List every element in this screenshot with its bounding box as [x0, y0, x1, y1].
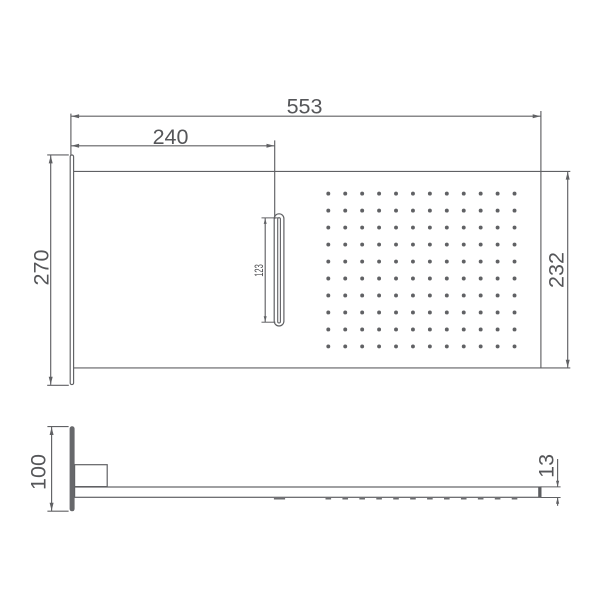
svg-text:13: 13 — [535, 454, 559, 478]
svg-text:240: 240 — [153, 125, 189, 149]
svg-text:553: 553 — [287, 95, 323, 119]
svg-text:232: 232 — [545, 252, 569, 288]
svg-text:270: 270 — [30, 250, 54, 286]
svg-text:123: 123 — [254, 264, 266, 277]
svg-text:100: 100 — [26, 454, 50, 490]
